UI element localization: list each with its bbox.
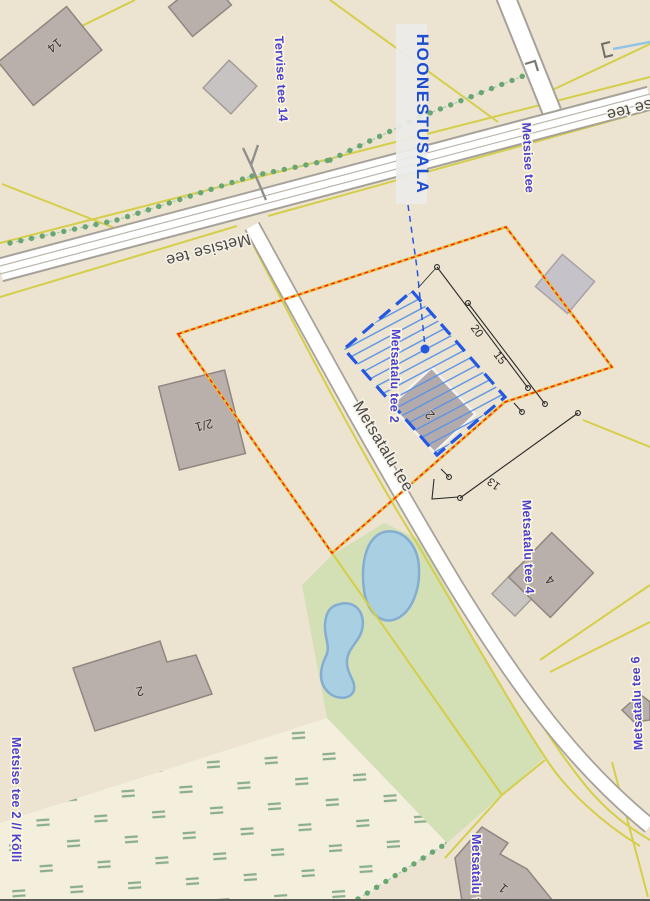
tree-dot-icon [377,134,382,139]
tree-dot-icon [479,90,484,95]
tree-dot-icon [509,78,514,83]
tree-dot-icon [114,217,119,222]
tree-dot-icon [40,233,45,238]
tree-dot-icon [93,222,98,227]
tree-dot-icon [367,138,372,143]
tree-dot-icon [387,129,392,134]
tree-dot-icon [468,94,473,99]
tree-dot-icon [72,226,77,231]
tree-dot-icon [314,160,319,165]
tree-dot-icon [18,238,23,243]
hoonestusala-label: HOONESTUSALA [413,34,432,195]
tree-dot-icon [146,207,151,212]
tree-dot-icon [439,844,444,849]
tree-dot-icon [448,102,453,107]
tree-dot-icon [208,187,213,192]
tree-dot-icon [50,231,55,236]
address-label-metsise-tee-2-kolli: Metsise tee 2 // Kõlli [9,737,23,862]
address-label-metsatalu-tee-2: Metsatalu tee 2 [387,329,403,423]
tree-dot-icon [402,867,407,872]
tree-dot-icon [282,167,287,172]
tree-dot-icon [156,204,161,209]
tree-dot-icon [337,153,342,158]
tree-dot-icon [229,180,234,185]
tree-dot-icon [167,200,172,205]
tree-dot-icon [489,86,494,91]
tree-dot-icon [520,74,525,79]
tree-dot-icon [104,220,109,225]
tree-dot-icon [188,193,193,198]
tree-dot-icon [135,211,140,216]
tree-dot-icon [421,855,426,860]
tree-dot-icon [438,106,443,111]
tree-dot-icon [393,873,398,878]
tree-dot-icon [347,148,352,153]
tree-dot-icon [83,224,88,229]
tree-dot-icon [458,98,463,103]
tree-dot-icon [198,190,203,195]
tree-dot-icon [125,214,130,219]
address-label-metsa-partial: Metsatalu tee [469,834,483,901]
pond-large [363,531,419,620]
tree-dot-icon [271,169,276,174]
hoonestusala-anchor-dot [421,345,430,354]
tree-dot-icon [430,849,435,854]
tree-dot-icon [29,236,34,241]
tree-dot-icon [365,890,370,895]
tree-dot-icon [383,879,388,884]
tree-dot-icon [327,157,332,162]
tree-dot-icon [260,171,265,176]
tree-dot-icon [499,82,504,87]
tree-dot-icon [7,240,12,245]
tree-dot-icon [292,165,297,170]
tree-dot-icon [303,162,308,167]
tree-dot-icon [219,183,224,188]
tree-dot-icon [177,197,182,202]
map-canvas[interactable]: 20 15 13 Metsise tee Metsise tee Metsata… [0,0,650,901]
tree-dot-icon [357,143,362,148]
tree-dot-icon [240,176,245,181]
tree-dot-icon [61,229,66,234]
tree-dot-icon [411,861,416,866]
tree-dot-icon [374,885,379,890]
